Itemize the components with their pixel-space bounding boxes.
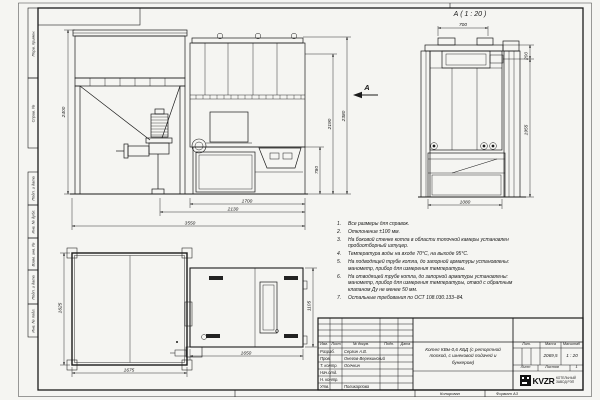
frame-stamp-inv-dubl: Инв. № дубл. <box>28 205 38 238</box>
note-item: 7.Остальные требования по ОСТ 108.030.13… <box>334 295 564 302</box>
frame-stamp-vzam-inv: Взам. инв. № <box>28 238 38 270</box>
dim-front-height: 2400 <box>61 106 67 118</box>
tb-role-nkontr: Н. контр. <box>320 378 338 382</box>
tb-mass-label: Масса <box>545 343 556 347</box>
note-item: 4.Температура воды на входе 70°С, на вых… <box>334 251 564 258</box>
notes-block: 1.Все размеры для справок. 2.Отклонение … <box>334 221 564 303</box>
tb-role-prov: Пров. <box>320 357 331 361</box>
tb-mass-value: 2069,5 <box>543 354 557 359</box>
dimension-labels: 2400 780 2190 2380 1700 2130 3550 700 20… <box>58 22 530 374</box>
note-item: 3.На боковой стенке котла в области топо… <box>334 237 564 250</box>
tb-role-nachotd: Нач.отд. <box>320 371 337 375</box>
dim-front-bottom-1: 1700 <box>242 199 253 205</box>
frame-stamp-podp-data-1: Подп. и дата <box>28 172 38 205</box>
front-view <box>70 30 308 194</box>
tb-name-razrab: Сергин А.В. <box>344 350 367 354</box>
footer-format-label: Формат А3 <box>496 392 518 396</box>
company-logo: KVZR КОТЕЛЬНЫЙ ЗАВОД РЭП <box>514 373 582 389</box>
tb-role-utv: Утв. <box>320 385 329 389</box>
dim-front-bottom-2: 2130 <box>227 207 239 213</box>
tb-col-izm: Изм. <box>320 343 328 347</box>
note-item: 2.Отклонение ±100 мм. <box>334 229 564 236</box>
drawing-canvas: А А ( 1 : 20 ) 2400 780 2190 2380 1700 2… <box>0 0 600 400</box>
mirrored-designation-stamp <box>38 8 140 25</box>
tb-name-prov: Онегов-Вережинский <box>344 357 385 361</box>
tb-col-doc: № докум. <box>353 343 369 347</box>
tb-sheet-label: Лист <box>521 366 531 370</box>
mounting-pads <box>206 276 298 338</box>
tb-role-tkontr: Т. контр. <box>320 364 338 368</box>
note-item: 1.Все размеры для справок. <box>334 221 564 228</box>
document-title: Котел КВм-0,6 КБД (с ретортной топкой, с… <box>420 347 506 365</box>
tb-col-date: Дата <box>401 343 411 347</box>
view-arrow-label: А <box>363 83 369 92</box>
tb-sheets-value: 1 <box>575 366 577 370</box>
view-arrow-marker: А <box>353 83 378 98</box>
view-arrow-head <box>353 92 362 98</box>
dim-section-right-2: 1955 <box>524 124 530 135</box>
dim-section-right-1: 200 <box>524 52 530 61</box>
dim-front-right-3: 2380 <box>341 110 347 122</box>
frame-stamp-podp-data-2: Подп. и дата <box>28 270 38 304</box>
dim-front-bottom-3: 3550 <box>185 221 196 227</box>
tb-scale-label: Масштаб <box>563 343 580 347</box>
frame-stamp-perv-primen: Перв. примен. <box>28 8 38 78</box>
dim-plan-bottom-bunker: 1675 <box>124 368 135 374</box>
frame-stamp-sprav-no: Справ. № <box>28 78 38 148</box>
drawing-sheet: А А ( 1 : 20 ) 2400 780 2190 2380 1700 2… <box>0 0 600 400</box>
tb-role-razrab: Разраб. <box>320 350 335 354</box>
kvzr-logo-text: KVZR <box>533 376 555 386</box>
kvzr-logo-mark <box>520 375 531 386</box>
dim-front-right-1: 780 <box>314 166 320 174</box>
company-name: КОТЕЛЬНЫЙ ЗАВОД РЭП <box>556 377 576 384</box>
section-view-title: А ( 1 : 20 ) <box>453 11 487 18</box>
dim-plan-right: 1105 <box>307 301 313 312</box>
dim-front-right-2: 2190 <box>327 118 333 130</box>
note-item: 6.На отводящей трубе котла, до запорной … <box>334 274 564 294</box>
section-view <box>418 38 526 197</box>
tb-col-sign: Подп. <box>384 343 394 347</box>
dim-plan-left: 1625 <box>58 302 64 313</box>
dim-plan-bottom-boiler: 1650 <box>241 351 252 357</box>
tb-name-tkontr: Осечкин <box>344 364 360 368</box>
tb-scale-value: 1 : 20 <box>566 354 578 359</box>
dim-section-bottom: 1080 <box>460 200 471 206</box>
tb-col-list: Лист <box>331 343 341 347</box>
tb-name-utv: Поликарпова <box>344 385 369 389</box>
dim-section-top: 700 <box>459 22 467 28</box>
feeder-motor <box>151 109 168 137</box>
tb-sheets-label: Листов <box>545 366 559 370</box>
document-title-cell: Котел КВм-0,6 КБД (с ретортной топкой, с… <box>414 343 512 370</box>
note-item: 5.На подводящей трубе котла, до запорной… <box>334 259 564 272</box>
frame-stamp-inv-podl: Инв. № подл. <box>28 304 38 337</box>
footer-copied-label: Копировал <box>440 392 460 396</box>
plan-view <box>67 248 307 370</box>
tb-lit-label: Лит. <box>522 343 531 347</box>
